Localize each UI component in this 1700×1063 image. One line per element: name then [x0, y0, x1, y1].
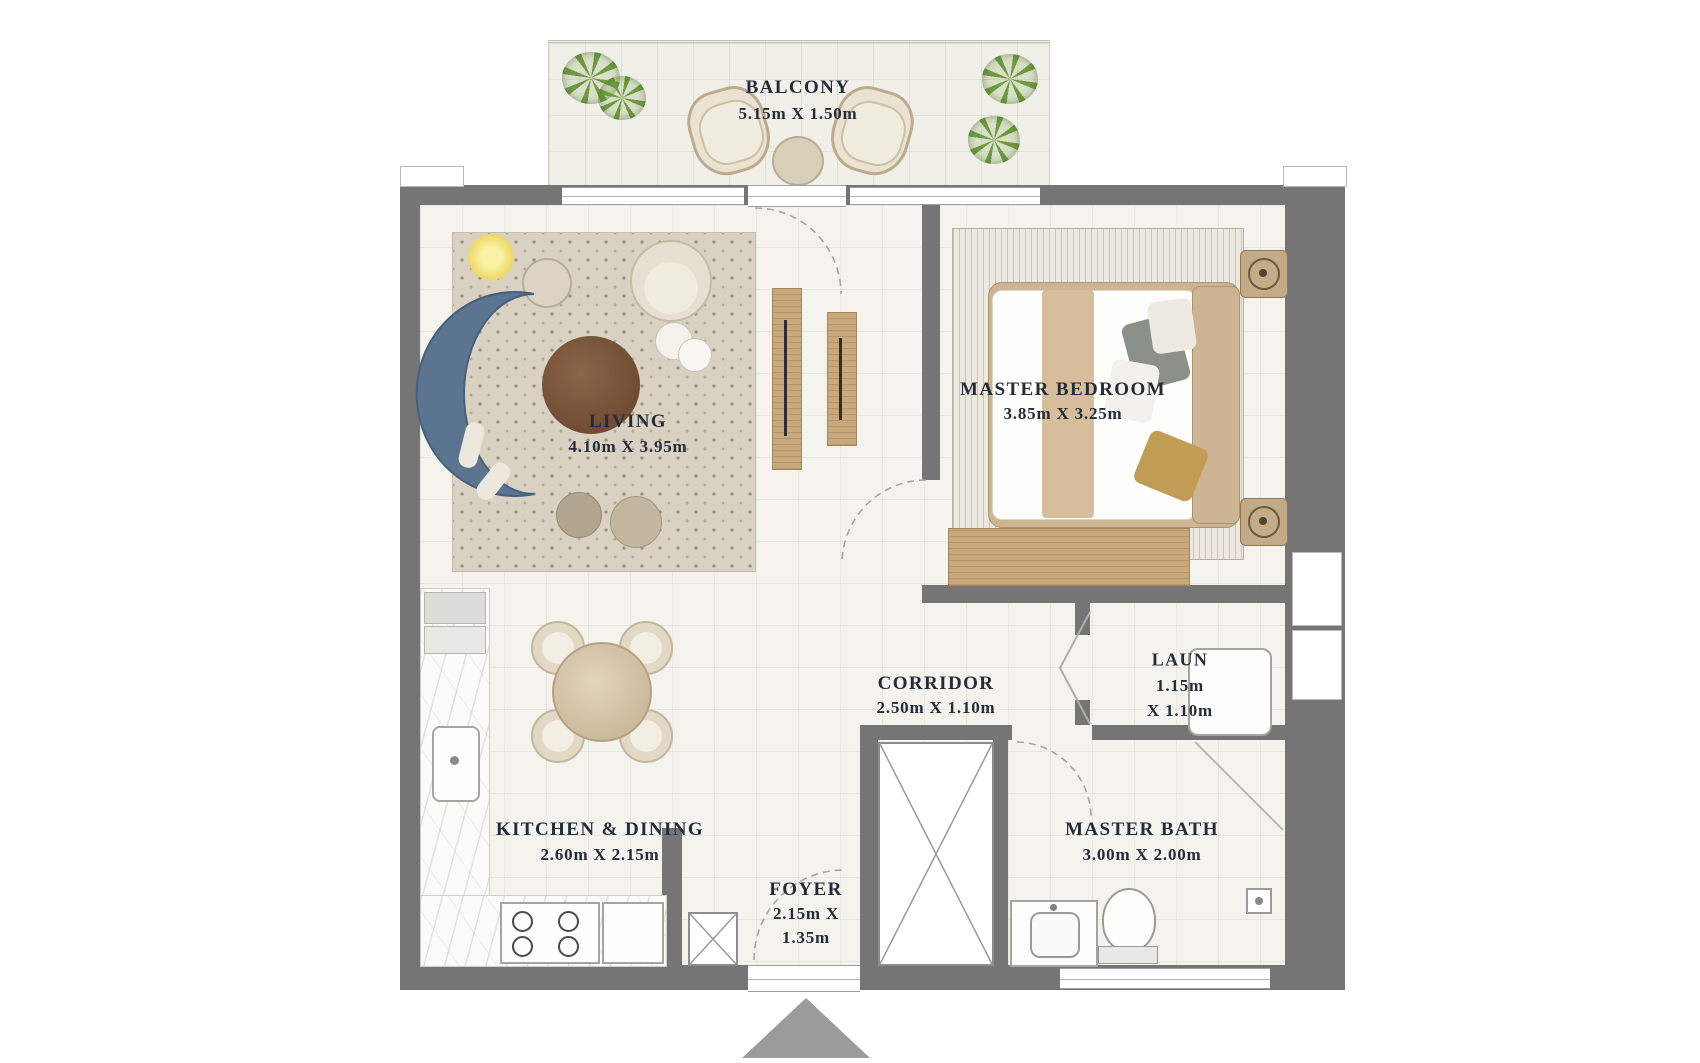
dining-table [552, 642, 652, 742]
corridor-label: CORRIDOR [878, 673, 995, 695]
window-sill [1283, 166, 1347, 187]
corridor-dims: 2.50m X 1.10m [877, 698, 996, 718]
pouf [610, 496, 662, 548]
wall-bath-top-left [860, 725, 1012, 740]
wall-bedroom-bottom [922, 585, 1285, 603]
plant-icon [598, 76, 646, 120]
elevator-shaft [878, 742, 994, 966]
foyer-dims-1: 2.15m X [773, 904, 839, 924]
kitchen-dining-dims: 2.60m X 2.15m [541, 845, 660, 865]
entry-door-opening [748, 965, 860, 992]
foyer-dims-2: 1.35m [782, 928, 830, 948]
foyer-label: FOYER [769, 879, 843, 901]
sliding-door-panel [827, 312, 857, 446]
sliding-door-track [784, 320, 787, 436]
pillow [1147, 297, 1198, 355]
floor-plan: BALCONY 5.15m X 1.50m LIVING 4.10m X 3.9… [0, 0, 1700, 1063]
pouf [556, 492, 602, 538]
wall-bedroom-left [922, 205, 940, 480]
living-label: LIVING [589, 411, 667, 433]
kitchen-cabinet [602, 902, 664, 964]
kitchen-sink [432, 726, 480, 802]
sliding-door-track [839, 338, 842, 420]
stove [500, 902, 600, 964]
bed-headboard [1192, 286, 1240, 524]
toilet [1102, 888, 1156, 952]
balcony-table [772, 136, 824, 186]
bath-vanity [1010, 900, 1098, 967]
curved-sofa [430, 280, 555, 508]
bifold-door [1056, 610, 1096, 728]
door-swing-arc [752, 206, 844, 298]
nightstand [1240, 498, 1288, 546]
balcony-label: BALCONY [746, 77, 851, 99]
utility-shaft [688, 912, 738, 966]
wall-foyer-right [860, 740, 878, 965]
entry-arrow-icon [742, 998, 870, 1058]
master-bath-label: MASTER BATH [1065, 819, 1219, 841]
shower-drain [1246, 888, 1272, 914]
nightstand [1240, 250, 1288, 298]
window-living [562, 187, 744, 205]
floor-lamp [468, 234, 514, 280]
toilet-tank [1098, 946, 1158, 964]
sliding-door-panel [772, 288, 802, 470]
balcony-door [748, 185, 846, 207]
laundry-label: LAUN [1152, 650, 1209, 671]
kitchen-appliance [424, 592, 486, 624]
plant-icon [968, 116, 1020, 164]
window-bath [1060, 968, 1270, 989]
master-bedroom-label: MASTER BEDROOM [960, 379, 1166, 401]
wall-left [400, 185, 420, 990]
master-bedroom-dims: 3.85m X 3.25m [1004, 404, 1123, 424]
storage-niche [1292, 552, 1342, 626]
door-swing-arc [840, 478, 928, 566]
laundry-dims-1: 1.15m [1156, 676, 1204, 696]
laundry-dims-2: X 1.10m [1147, 701, 1213, 721]
balcony-dims: 5.15m X 1.50m [739, 104, 858, 124]
window-bedroom [850, 187, 1040, 205]
living-dims: 4.10m X 3.95m [569, 437, 688, 457]
kitchen-dining-label: KITCHEN & DINING [496, 819, 704, 841]
master-bath-dims: 3.00m X 2.00m [1083, 845, 1202, 865]
window-sill [400, 166, 464, 187]
plant-icon [982, 54, 1038, 104]
storage-niche [1292, 630, 1342, 700]
armchair [630, 240, 712, 322]
wall-bath-left [993, 740, 1008, 965]
door-swing-arc [1015, 740, 1093, 818]
dresser [948, 528, 1190, 586]
nesting-table [678, 338, 712, 372]
kitchen-appliance [424, 626, 486, 654]
